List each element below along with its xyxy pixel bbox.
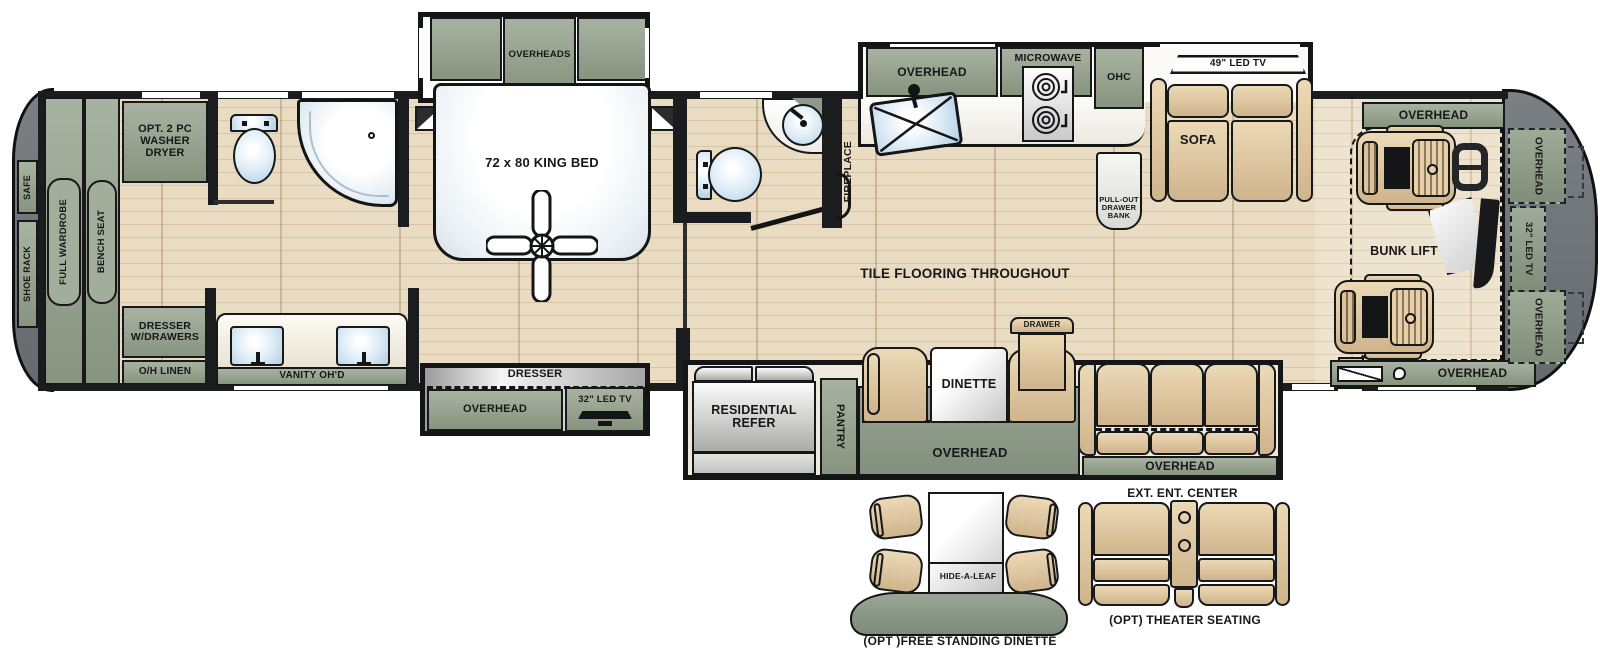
sofa2-back-cushion <box>1204 363 1258 427</box>
theater-console-base <box>1174 588 1194 608</box>
vanity-sink <box>336 326 390 366</box>
overhead-cabinet <box>430 17 502 81</box>
compartment-box <box>1337 366 1383 382</box>
vanity-overhead-bar: VANITY OH'D <box>216 367 408 386</box>
theater-armrest <box>1078 502 1093 606</box>
sofa2-overhead: OVERHEAD <box>1082 456 1278 477</box>
overhead-label: OVERHEAD <box>1399 109 1469 122</box>
toilet-bowl <box>233 128 276 184</box>
sofa-back-cushion <box>1167 84 1229 118</box>
shoe-rack-label: SHOE RACK <box>23 246 33 302</box>
tv32-label: 32" LED TV <box>567 393 643 407</box>
pantry-cabinet: PANTRY <box>820 378 858 476</box>
tank-bolt <box>703 184 708 189</box>
window <box>142 92 200 98</box>
toilet-bowl <box>708 147 762 202</box>
safe-cabinet: SAFE <box>17 160 38 214</box>
dinette-chair <box>868 493 925 541</box>
window <box>645 28 649 78</box>
overhead-label: OVERHEAD <box>463 404 527 416</box>
dresser-bar: DRESSER <box>428 366 642 384</box>
overhead-label: OVERHEAD <box>897 66 967 79</box>
cupholder-icon <box>1178 539 1191 552</box>
theater-console <box>1170 500 1198 588</box>
seat-cushion <box>1412 139 1450 197</box>
partition-wall-top <box>673 95 687 223</box>
dinette-bench <box>862 347 928 423</box>
rv-floorplan: SAFE SHOE RACK FULL WARDROBE BENCH SEAT … <box>0 0 1600 651</box>
wall-top-front <box>1313 91 1508 99</box>
drawer-pullout-cap: DRAWER <box>1010 317 1074 334</box>
theater-seat-cushion <box>1093 558 1170 582</box>
driver-seat <box>1356 131 1456 205</box>
sofa2-back-cushion <box>1150 363 1204 427</box>
overhead-label: OVERHEAD <box>1532 298 1543 356</box>
tv-icon <box>578 411 632 419</box>
free-standing-dinette-label: (OPT )FREE STANDING DINETTE <box>828 633 1092 649</box>
seat-cushion <box>1390 288 1428 346</box>
nightstand-shade <box>652 108 675 129</box>
sofa2-armrest <box>1078 363 1096 456</box>
dinette-label: DINETTE <box>942 378 997 392</box>
dresser-w-drawers-label: DRESSER W/DRAWERS <box>131 321 199 344</box>
tv49-label: 49" LED TV <box>1210 59 1266 70</box>
wheel-spoke <box>1459 165 1481 170</box>
sofa2-seat-cushion <box>1204 431 1258 455</box>
pocket-door <box>683 223 687 328</box>
vanity-sink <box>230 326 284 366</box>
seat-headrest <box>1362 141 1378 195</box>
theater-seat-cushion <box>1198 558 1275 582</box>
sofa2-armrest <box>1258 363 1276 456</box>
vanity-wall-left <box>205 288 216 385</box>
fridge-door <box>755 366 814 382</box>
free-standing-table: HIDE-A-LEAF <box>928 492 1004 594</box>
steering-wheel-icon <box>1452 143 1488 191</box>
faucet-icon <box>357 362 371 366</box>
burners-icon <box>1024 68 1071 139</box>
cap-tv-cabinet: 32" LED TV <box>1510 206 1546 292</box>
seat-gap <box>1362 296 1388 338</box>
overhead-label: OVERHEAD <box>1438 367 1508 380</box>
tile-flooring-label: TILE FLOORING THROUGHOUT <box>845 264 1085 284</box>
chair-back-line <box>873 503 884 538</box>
ext-ent-center-label: EXT. ENT. CENTER <box>1110 485 1255 501</box>
safe-label: SAFE <box>23 175 33 200</box>
drawer-label: DRAWER <box>1024 321 1061 330</box>
bedroom-overhead: OVERHEAD <box>427 389 563 431</box>
vanity-ohd-label: VANITY OH'D <box>279 371 344 382</box>
sofa-seat-cushion <box>1231 120 1293 202</box>
pull-out-drawer-bank: PULL-OUT DRAWER BANK <box>1096 152 1142 230</box>
window <box>419 28 423 78</box>
dinette-chair <box>868 547 925 595</box>
ohc-cabinet: OHC <box>1094 47 1144 109</box>
residential-refrigerator: RESIDENTIAL REFER <box>692 381 816 453</box>
sofa-armrest <box>1296 78 1313 202</box>
dinette-platform <box>850 592 1068 636</box>
cap-overhead-top: OVERHEAD <box>1508 128 1566 204</box>
sofa-armrest <box>1150 78 1167 202</box>
theater-back <box>1198 502 1275 556</box>
overhead-label: OVERHEAD <box>1532 137 1543 195</box>
passenger-seat <box>1334 280 1434 354</box>
dinette-table: DINETTE <box>930 347 1008 423</box>
fireplace-label: FIREPLACE <box>843 141 854 202</box>
fridge-base <box>692 452 816 475</box>
shoe-rack-cabinet: SHOE RACK <box>17 220 38 328</box>
bedroom-tv-cabinet: 32" LED TV <box>565 387 645 432</box>
washer-dryer-label: OPT. 2 PC WASHER DRYER <box>138 124 192 160</box>
bench-seat-label: BENCH SEAT <box>97 210 107 273</box>
dinette-chair <box>1004 493 1061 541</box>
faucet-icon <box>790 108 803 120</box>
vanity-wall-right <box>408 288 419 385</box>
hide-a-leaf-label: HIDE-A-LEAF <box>922 566 1014 588</box>
sofa-label-wrap: SOFA <box>1167 130 1229 150</box>
mid-bath-wall <box>687 212 751 223</box>
table-leaf-divider <box>930 562 1002 564</box>
theater-back <box>1093 502 1170 556</box>
ceiling-fan-icon <box>486 190 598 302</box>
tv49-console: 49" LED TV <box>1170 55 1306 74</box>
chair-back-line <box>873 553 884 588</box>
king-bed-label: 72 x 80 KING BED <box>485 156 599 170</box>
sofa2-back-cushion <box>1096 363 1150 427</box>
residential-refer-label: RESIDENTIAL REFER <box>711 404 797 431</box>
seat-hub-icon <box>1427 164 1438 175</box>
pantry-label: PANTRY <box>833 404 845 449</box>
theater-armrest <box>1275 502 1290 606</box>
chair-back-line <box>1046 503 1057 538</box>
dresser-w-drawers: DRESSER W/DRAWERS <box>122 306 208 358</box>
bench-seat: BENCH SEAT <box>87 180 117 304</box>
sofa-label: SOFA <box>1180 133 1216 147</box>
theater-seating <box>1078 500 1290 610</box>
round-sink <box>782 104 824 146</box>
overhead-cabinet <box>577 17 647 81</box>
overheads-cabinet: OVERHEADS <box>503 17 576 93</box>
cooktop <box>1022 66 1074 142</box>
tv32-label: 32" LED TV <box>1523 222 1533 276</box>
ohc-label: OHC <box>1107 72 1131 83</box>
tank-bolt <box>242 121 247 126</box>
seat-gap <box>1384 147 1410 189</box>
chair-back-line <box>1046 552 1057 587</box>
window <box>302 92 394 98</box>
sofa2-seat-cushion <box>1150 431 1204 455</box>
overhead-label-wrap: OVERHEAD <box>1410 362 1535 385</box>
overhead-label: OVERHEAD <box>932 446 1007 460</box>
seat-hub-icon <box>1405 313 1416 324</box>
overhead-label: OVERHEAD <box>1145 460 1215 473</box>
fridge-door <box>694 366 753 382</box>
window <box>1160 44 1300 49</box>
tv-stand-icon <box>598 421 612 426</box>
shower-drain <box>368 132 375 139</box>
rear-bath-wall <box>208 95 218 205</box>
bench-armrest <box>867 353 880 415</box>
sofa-back-cushion <box>1231 84 1293 118</box>
tank-bolt <box>703 162 708 167</box>
dresser-label: DRESSER <box>508 369 563 381</box>
kettle-icon <box>1393 367 1406 380</box>
dinette-overhead-label-wrap: OVERHEAD <box>900 444 1040 462</box>
oh-linen-label: O/H LINEN <box>139 367 191 378</box>
theater-seat-cushion <box>1198 584 1275 606</box>
full-wardrobe: FULL WARDROBE <box>47 178 81 306</box>
drawer-pullout-body <box>1018 333 1066 391</box>
faucet-icon <box>251 362 265 366</box>
tank-bolt <box>264 121 269 126</box>
oh-linen: O/H LINEN <box>122 360 208 385</box>
microwave-label: MICROWAVE <box>998 52 1098 66</box>
kitchen-overhead: OVERHEAD <box>866 47 998 97</box>
faucet-icon <box>800 120 807 127</box>
window <box>218 92 288 98</box>
shower-wall <box>398 95 409 227</box>
rear-bath-pocket-door <box>214 200 274 204</box>
theater-seat-cushion <box>1093 584 1170 606</box>
entry-door-gap <box>1292 384 1334 390</box>
washer-dryer-cabinet: OPT. 2 PC WASHER DRYER <box>122 101 208 183</box>
front-bottom-overhead: OVERHEAD <box>1330 360 1536 387</box>
seat-headrest <box>1340 290 1356 344</box>
cupholder-icon <box>1178 511 1191 524</box>
pull-out-drawer-bank-label: PULL-OUT DRAWER BANK <box>1099 196 1139 220</box>
cap-overhead-bottom: OVERHEAD <box>1508 290 1566 364</box>
full-wardrobe-label: FULL WARDROBE <box>59 199 69 285</box>
theater-seating-label: (OPT) THEATER SEATING <box>1080 612 1290 628</box>
overheads-label: OVERHEADS <box>509 50 571 60</box>
sofa2-seat-cushion <box>1096 431 1150 455</box>
fireplace: FIREPLACE <box>840 122 857 222</box>
